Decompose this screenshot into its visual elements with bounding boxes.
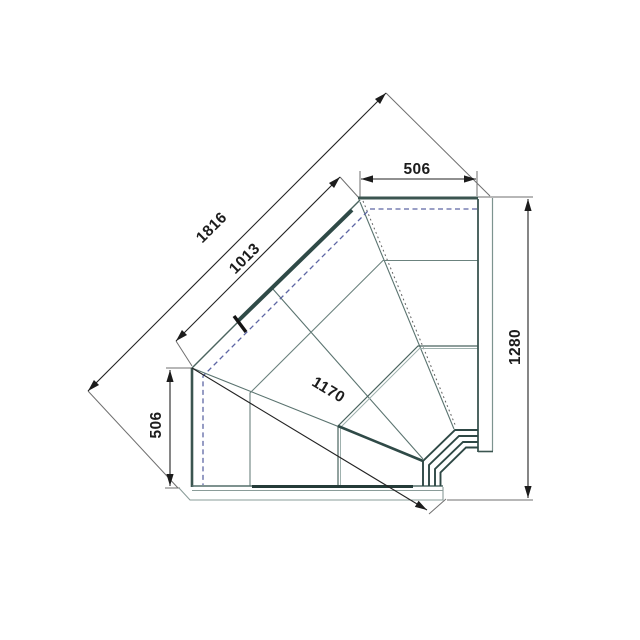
dimension-lines xyxy=(88,93,528,510)
deck-arc-outer xyxy=(250,261,478,487)
dim-label-outer-diagonal: 1816 xyxy=(193,209,231,247)
corner-counter-drawing: 506 1816 1013 1170 506 1280 xyxy=(0,0,640,640)
dim-label-side-depth: 1280 xyxy=(507,329,524,365)
corner-bumper xyxy=(423,430,478,486)
deck-arc-inner xyxy=(338,346,478,486)
dimension-labels: 506 1816 1013 1170 506 1280 xyxy=(148,161,524,439)
dim-label-top-width: 506 xyxy=(403,161,430,178)
technical-drawing-page: 506 1816 1013 1170 506 1280 xyxy=(0,0,640,640)
fan-radial-1-dotted xyxy=(363,201,456,427)
deck-arc-inner-shadow xyxy=(341,349,479,487)
extension-lines xyxy=(88,93,533,514)
dim-line-1170 xyxy=(192,368,427,510)
dim-label-front-diagonal: 1170 xyxy=(309,374,348,407)
dim-label-left-depth: 506 xyxy=(148,411,165,438)
fan-radial-1 xyxy=(360,202,454,429)
fan-radial-2 xyxy=(272,288,423,459)
front-inner-thick xyxy=(338,426,423,461)
dim-line-1013 xyxy=(176,177,340,341)
plinth-outline xyxy=(179,487,443,500)
dim-line-1816 xyxy=(88,93,386,391)
glass-front-thick xyxy=(237,210,352,322)
